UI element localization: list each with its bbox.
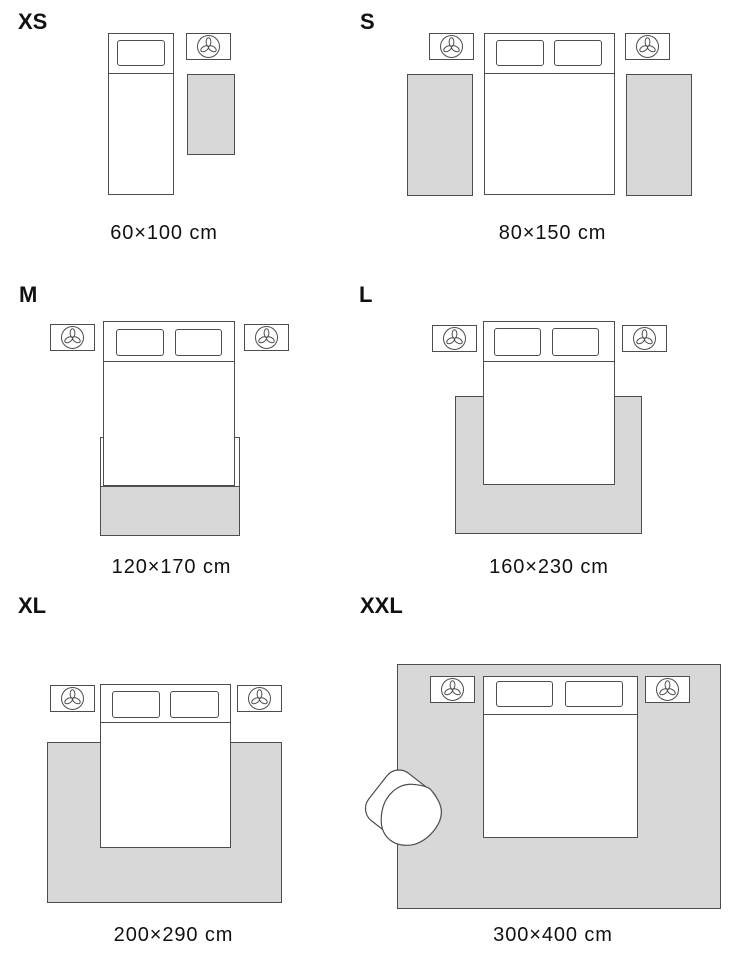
svg-text:XXL: XXL: [360, 593, 403, 618]
svg-text:120×170 cm: 120×170 cm: [112, 556, 232, 578]
svg-text:160×230 cm: 160×230 cm: [489, 556, 609, 578]
svg-text:XL: XL: [18, 593, 46, 618]
svg-text:XS: XS: [18, 9, 47, 34]
svg-text:60×100 cm: 60×100 cm: [110, 222, 218, 244]
svg-text:M: M: [19, 282, 37, 307]
svg-text:L: L: [359, 282, 372, 307]
svg-text:300×400 cm: 300×400 cm: [493, 924, 613, 946]
svg-text:200×290 cm: 200×290 cm: [114, 924, 234, 946]
svg-text:80×150 cm: 80×150 cm: [499, 222, 607, 244]
svg-text:S: S: [360, 9, 375, 34]
